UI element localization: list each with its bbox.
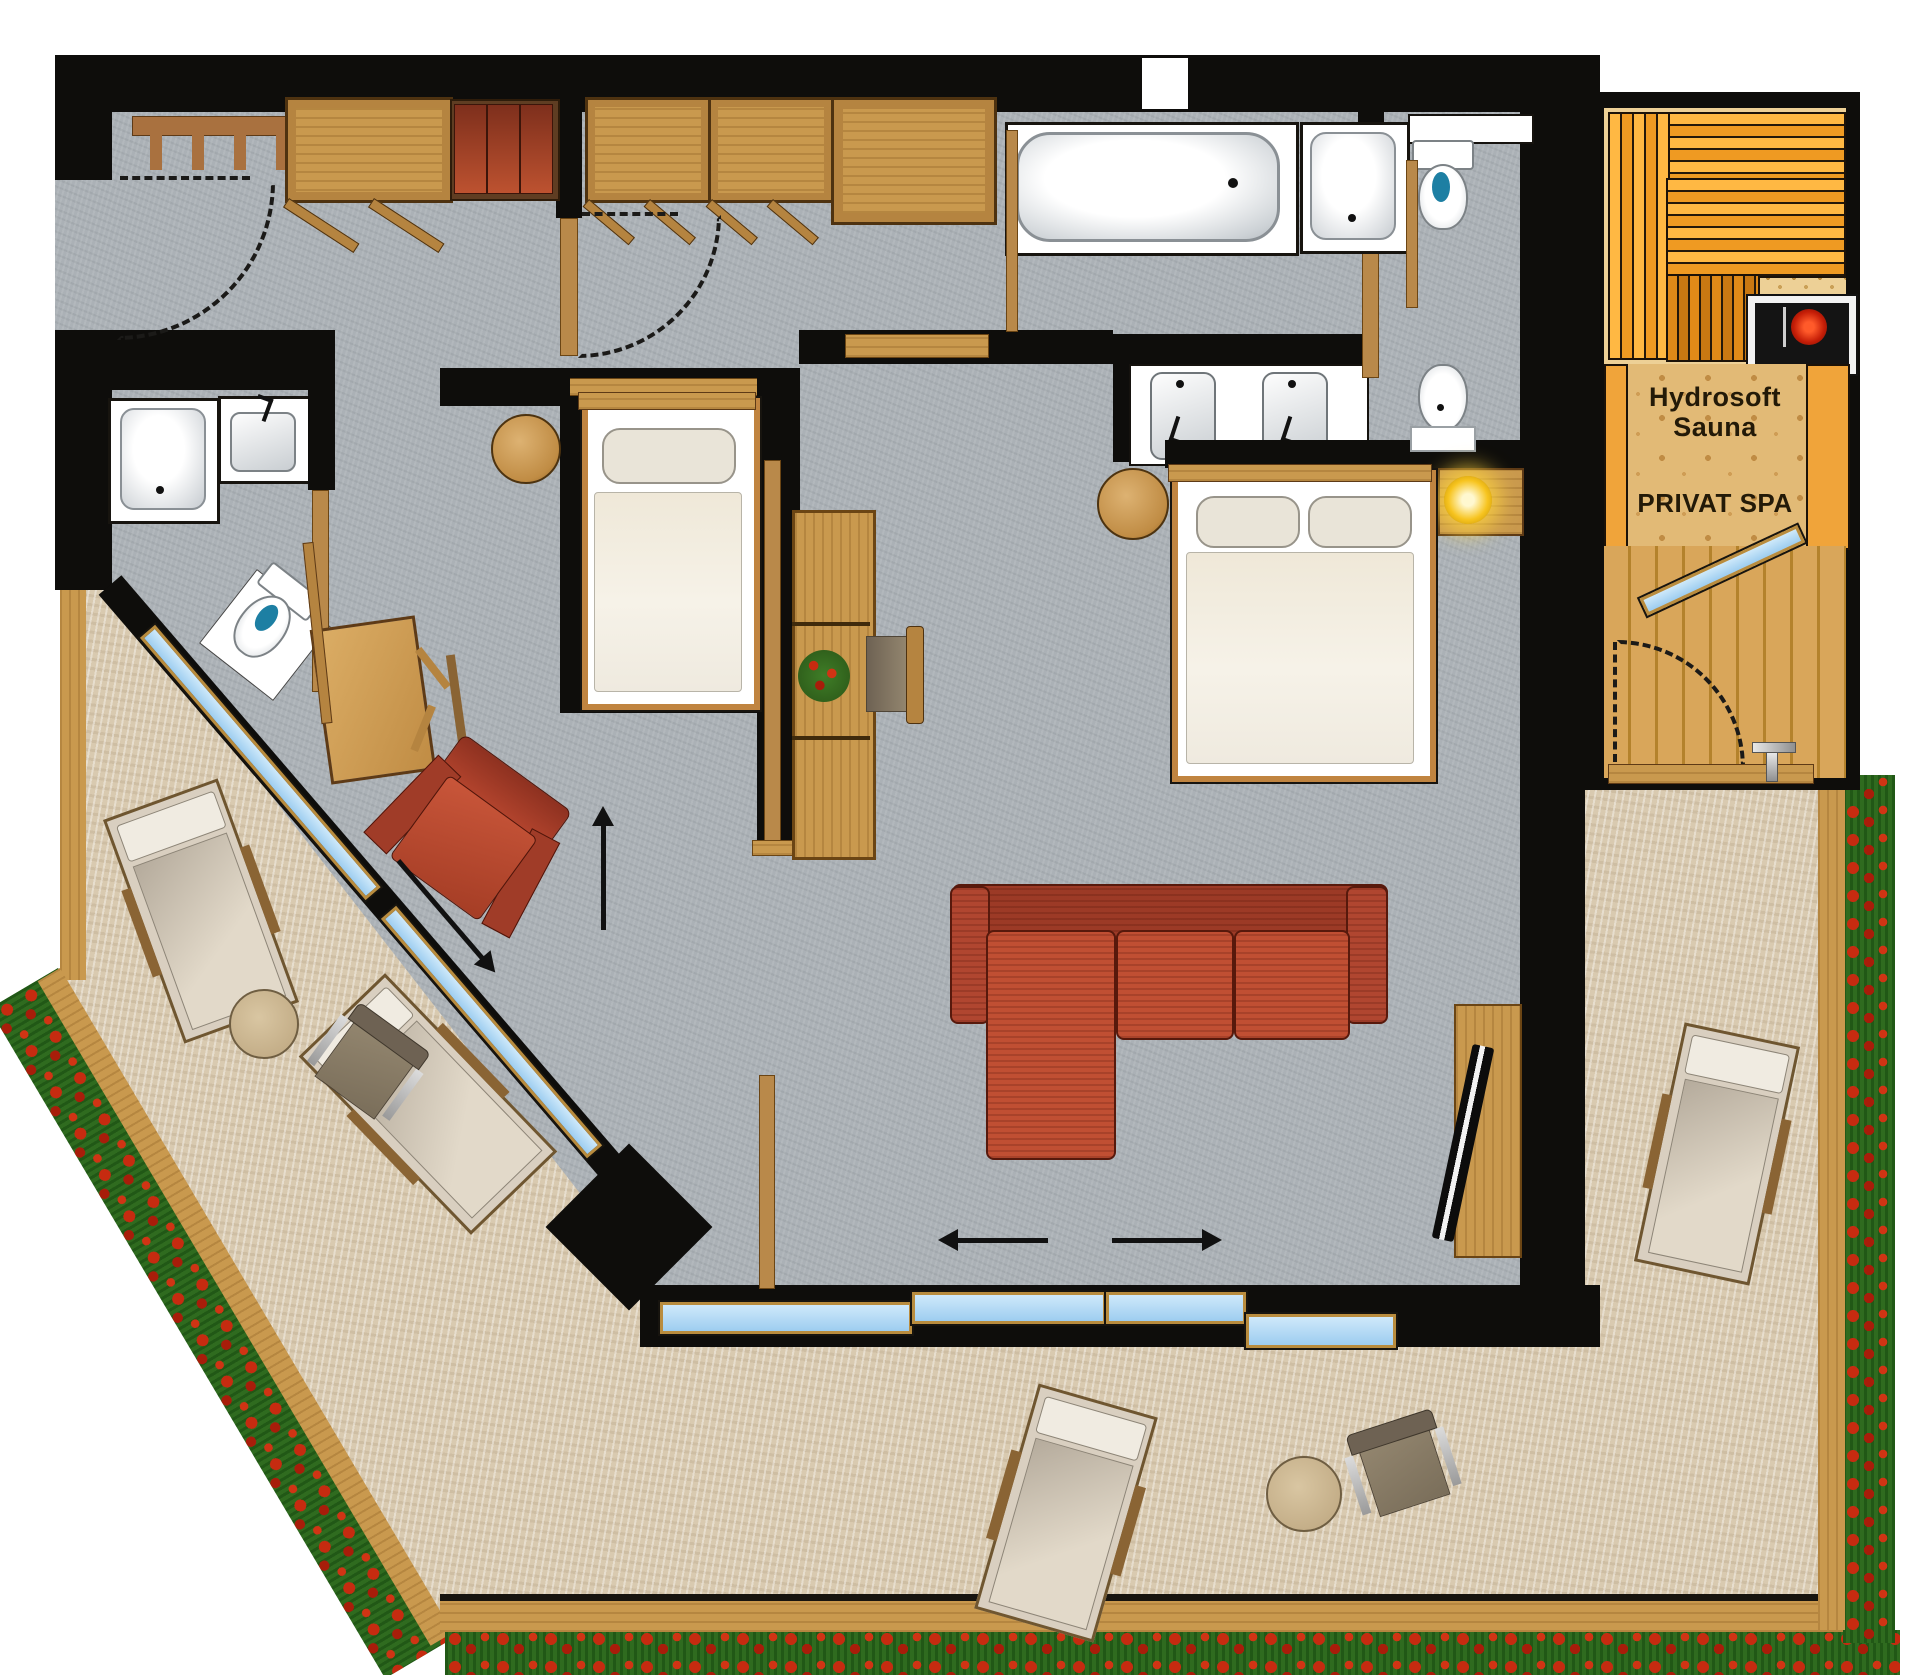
- coat-hook: [234, 134, 246, 170]
- shelf-divider: [792, 622, 870, 626]
- shelf-divider: [792, 736, 870, 740]
- door-bathroom: [845, 334, 989, 358]
- window-niche-top: [1142, 58, 1188, 109]
- shower2-drain: [1348, 214, 1356, 222]
- wall-vanity-top: [1113, 334, 1365, 364]
- sauna-bench-inner: [1666, 178, 1846, 278]
- floor-plan: Hydrosoft Sauna PRIVAT SPA: [0, 0, 1920, 1675]
- flower-border-bottom: [445, 1630, 1900, 1675]
- slide-arrow-left: [938, 1236, 1048, 1246]
- coat-hook: [192, 134, 204, 170]
- wall-bed1-left: [440, 368, 570, 406]
- sofa-armrest-left: [950, 886, 990, 1024]
- coat-hook: [150, 134, 162, 170]
- round-stool: [1097, 468, 1169, 540]
- sofa-seat: [1234, 930, 1350, 1040]
- flower-border-right: [1843, 775, 1895, 1643]
- partition-living: [759, 1075, 775, 1289]
- spa-bench-right: [1806, 364, 1850, 550]
- privat-spa-label: PRIVAT SPA: [1612, 488, 1818, 519]
- sofa-chaise: [986, 930, 1116, 1160]
- sauna-label-line2: Sauna: [1620, 412, 1810, 443]
- toilet-lid-mark: [1432, 172, 1450, 202]
- double-bed-pillow: [1308, 496, 1412, 548]
- door-bedroom1: [560, 218, 578, 356]
- sliding-window: [912, 1292, 1106, 1324]
- sauna-label-line1: Hydrosoft: [1620, 382, 1810, 413]
- wall-entry-bath: [55, 330, 335, 390]
- faucet-icon: [1288, 380, 1296, 388]
- single-bed-pillow: [602, 428, 736, 484]
- sliding-window: [1246, 1314, 1396, 1348]
- terrace-trim-left: [60, 585, 86, 980]
- bidet-bowl: [1418, 364, 1468, 432]
- sauna-heater: [1748, 296, 1856, 374]
- door-wc: [1362, 252, 1379, 378]
- desk-chair: [866, 626, 926, 722]
- wardrobe: [708, 97, 834, 203]
- slide-arrow-right: [1112, 1236, 1222, 1246]
- wall-vanity-left: [1113, 334, 1129, 462]
- single-bed-blanket: [594, 492, 742, 692]
- shower-basin: [120, 408, 206, 510]
- sofa-armrest-right: [1346, 886, 1388, 1024]
- spa-door-handle: [1766, 752, 1778, 782]
- spa-threshold: [1608, 764, 1814, 784]
- shower2-basin: [1310, 132, 1396, 240]
- sliding-window: [660, 1302, 912, 1334]
- shower-drain: [156, 486, 164, 494]
- bidet-base: [1410, 426, 1476, 452]
- shower2-side-panel: [1406, 160, 1418, 308]
- bench-cushion-red: [520, 104, 553, 194]
- wardrobe: [585, 97, 711, 203]
- wall-right-lower: [1520, 790, 1585, 1346]
- entry-door-opening: [55, 180, 112, 338]
- double-bed-blanket: [1186, 552, 1414, 764]
- bathtub-side-panel: [1006, 130, 1018, 332]
- terrace-round-table: [229, 989, 299, 1059]
- terrace-trim-right: [1818, 778, 1845, 1630]
- bathtub: [1016, 132, 1280, 242]
- single-bed-headboard: [578, 392, 756, 410]
- round-stool: [491, 414, 561, 484]
- bench-cushion-red: [454, 104, 487, 194]
- double-bed-headboard: [1168, 464, 1432, 482]
- sauna-bench-step: [1666, 274, 1760, 362]
- wall-bath-door-jamb: [308, 385, 335, 490]
- sofa-seat: [1116, 930, 1234, 1040]
- sauna-bench-left: [1608, 112, 1670, 360]
- wardrobe: [285, 97, 453, 203]
- terrace-trim-bottom: [440, 1601, 1845, 1632]
- bidet-drain: [1437, 404, 1444, 411]
- bathtub-drain: [1228, 178, 1238, 188]
- bench-cushion-red: [487, 104, 520, 194]
- terrace-edge-line-bottom: [440, 1594, 1845, 1601]
- double-bed-pillow: [1196, 496, 1300, 548]
- terrace-round-table: [1266, 1456, 1342, 1532]
- sliding-door-bed1: [764, 460, 781, 848]
- direction-arrow-up: [598, 806, 608, 930]
- wardrobe-large: [831, 97, 997, 225]
- table-lamp: [1444, 476, 1492, 524]
- sliding-window: [1106, 1292, 1246, 1324]
- flower-pot: [798, 650, 850, 702]
- faucet-icon: [1176, 380, 1184, 388]
- entry-door-swing-line: [120, 176, 250, 180]
